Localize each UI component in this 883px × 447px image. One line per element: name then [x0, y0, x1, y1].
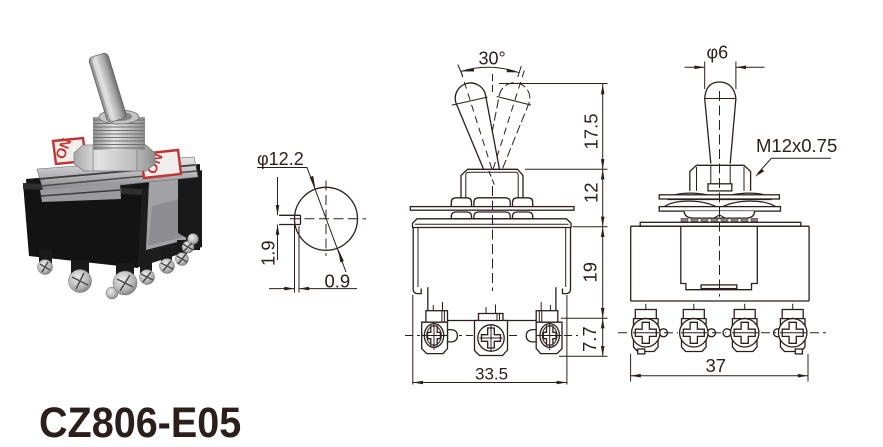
- svg-text:30°: 30°: [479, 49, 506, 69]
- svg-text:1.9: 1.9: [258, 240, 279, 266]
- svg-text:M12x0.75: M12x0.75: [756, 135, 837, 156]
- svg-text:37: 37: [706, 355, 727, 376]
- svg-text:7.7: 7.7: [579, 326, 600, 352]
- svg-text:CZ806-E05: CZ806-E05: [39, 398, 241, 446]
- svg-text:17.5: 17.5: [581, 113, 602, 149]
- svg-text:33.5: 33.5: [475, 365, 508, 384]
- svg-text:0.9: 0.9: [325, 271, 351, 292]
- svg-text:φ6: φ6: [707, 43, 729, 63]
- svg-text:19: 19: [580, 262, 601, 283]
- svg-text:12: 12: [581, 182, 602, 203]
- svg-text:φ12.2: φ12.2: [257, 149, 304, 169]
